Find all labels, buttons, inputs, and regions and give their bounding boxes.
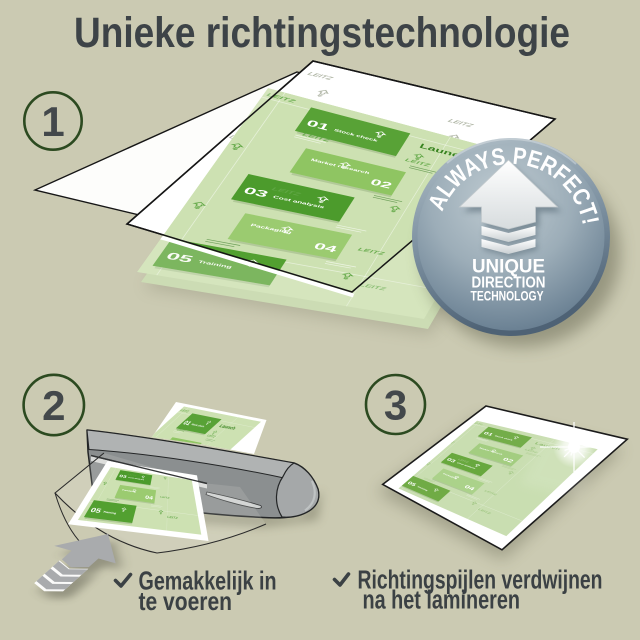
svg-text:te voeren: te voeren	[139, 586, 233, 616]
svg-text:Unieke richtingstechnologie: Unieke richtingstechnologie	[74, 9, 570, 57]
svg-text:na het lamineren: na het lamineren	[363, 587, 521, 615]
svg-text:2: 2	[42, 382, 65, 429]
svg-text:TECHNOLOGY: TECHNOLOGY	[471, 288, 544, 303]
svg-text:1: 1	[41, 98, 64, 145]
svg-text:3: 3	[384, 382, 407, 429]
